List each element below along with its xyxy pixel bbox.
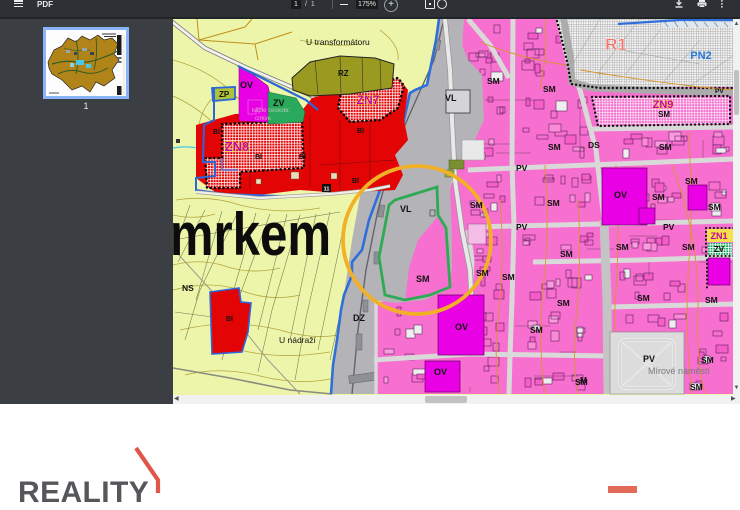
svg-text:SM: SM (616, 242, 629, 252)
svg-text:OV: OV (455, 322, 468, 332)
svg-text:SM: SM (476, 268, 489, 278)
svg-text:PV: PV (715, 88, 724, 95)
svg-text:kaple českobr.: kaple českobr. (252, 108, 291, 114)
svg-text:PV: PV (643, 354, 655, 364)
svg-text:Bl: Bl (226, 316, 233, 323)
svg-text:Bl: Bl (299, 154, 306, 161)
svg-text:M: M (580, 375, 587, 385)
svg-text:PV: PV (516, 222, 528, 232)
svg-text:PN2: PN2 (690, 50, 711, 62)
svg-text:OV: OV (240, 80, 253, 90)
svg-text:VL: VL (400, 204, 412, 214)
svg-text:SM: SM (502, 272, 515, 282)
svg-text:SM: SM (708, 202, 721, 212)
svg-text:11: 11 (324, 187, 330, 193)
svg-text:DS: DS (588, 140, 600, 150)
svg-text:SM: SM (548, 142, 561, 152)
svg-text:SM: SM (690, 382, 703, 392)
svg-text:OV: OV (434, 367, 447, 377)
svg-text:SM: SM (658, 110, 670, 119)
svg-text:SM: SM (416, 274, 430, 284)
svg-text:SM: SM (557, 298, 570, 308)
svg-text:Bl: Bl (255, 154, 262, 161)
svg-text:ZN8: ZN8 (225, 139, 250, 154)
svg-text:SM: SM (652, 192, 665, 202)
svg-text:U transformátoru: U transformátoru (306, 37, 370, 47)
svg-text:církve: církve (255, 116, 272, 122)
svg-text:DZ: DZ (353, 313, 365, 323)
svg-text:PV: PV (663, 222, 675, 232)
svg-text:SM: SM (685, 176, 698, 186)
svg-text:ZV: ZV (273, 98, 285, 108)
svg-text:SM: SM (487, 76, 500, 86)
svg-text:SM: SM (560, 249, 573, 259)
svg-text:Bl: Bl (352, 178, 359, 185)
svg-text:SM: SM (637, 293, 650, 303)
svg-text:Bl: Bl (213, 129, 220, 136)
svg-text:SM: SM (530, 325, 543, 335)
svg-text:Bl: Bl (357, 128, 364, 135)
svg-text:SM: SM (705, 295, 718, 305)
svg-text:ZV: ZV (714, 245, 725, 254)
svg-text:U nádraží: U nádraží (279, 335, 316, 345)
svg-text:RZ: RZ (338, 69, 349, 78)
svg-text:ZN1: ZN1 (710, 231, 727, 241)
svg-text:OV: OV (614, 190, 627, 200)
svg-text:R1: R1 (605, 35, 627, 54)
svg-text:SM: SM (659, 142, 672, 152)
svg-text:mrkem: mrkem (173, 200, 331, 268)
svg-text:VL: VL (445, 93, 457, 103)
svg-text:NS: NS (182, 283, 194, 293)
svg-text:PV: PV (516, 163, 528, 173)
svg-text:SM: SM (543, 84, 556, 94)
svg-text:SM: SM (701, 355, 714, 365)
svg-text:ZP: ZP (219, 90, 230, 99)
svg-text:SM: SM (682, 242, 695, 252)
svg-text:SM: SM (547, 198, 560, 208)
svg-text:SM: SM (470, 200, 483, 210)
svg-text:Mírové náměstí: Mírové náměstí (648, 366, 711, 376)
svg-text:ZN7: ZN7 (357, 93, 380, 107)
